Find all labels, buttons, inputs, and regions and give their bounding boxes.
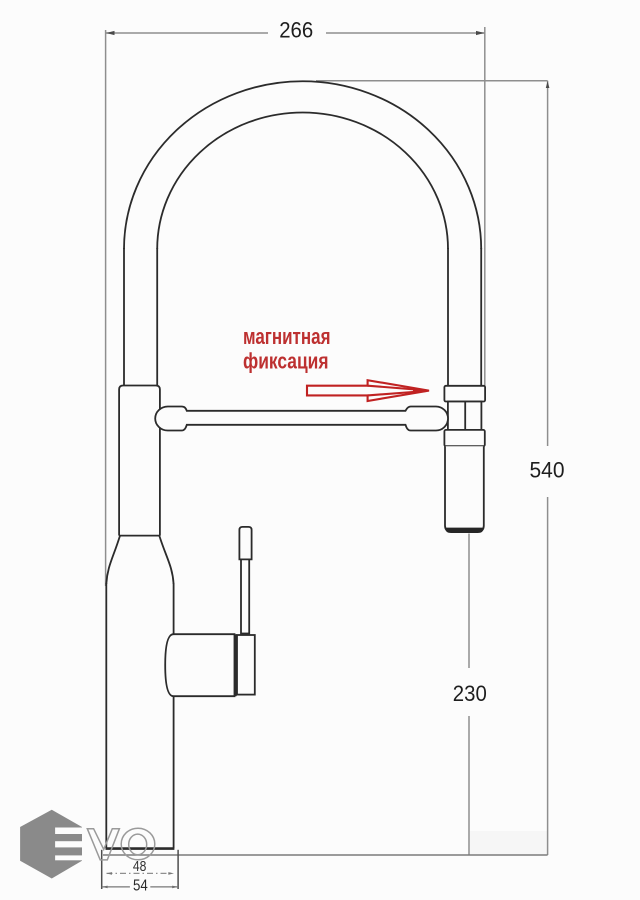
svg-text:230: 230 [453,681,487,706]
svg-text:фиксация: фиксация [243,349,329,374]
svg-text:48: 48 [133,858,147,875]
svg-text:магнитная: магнитная [243,324,331,349]
svg-text:266: 266 [279,17,313,42]
svg-text:54: 54 [133,878,148,895]
svg-text:540: 540 [530,457,565,482]
